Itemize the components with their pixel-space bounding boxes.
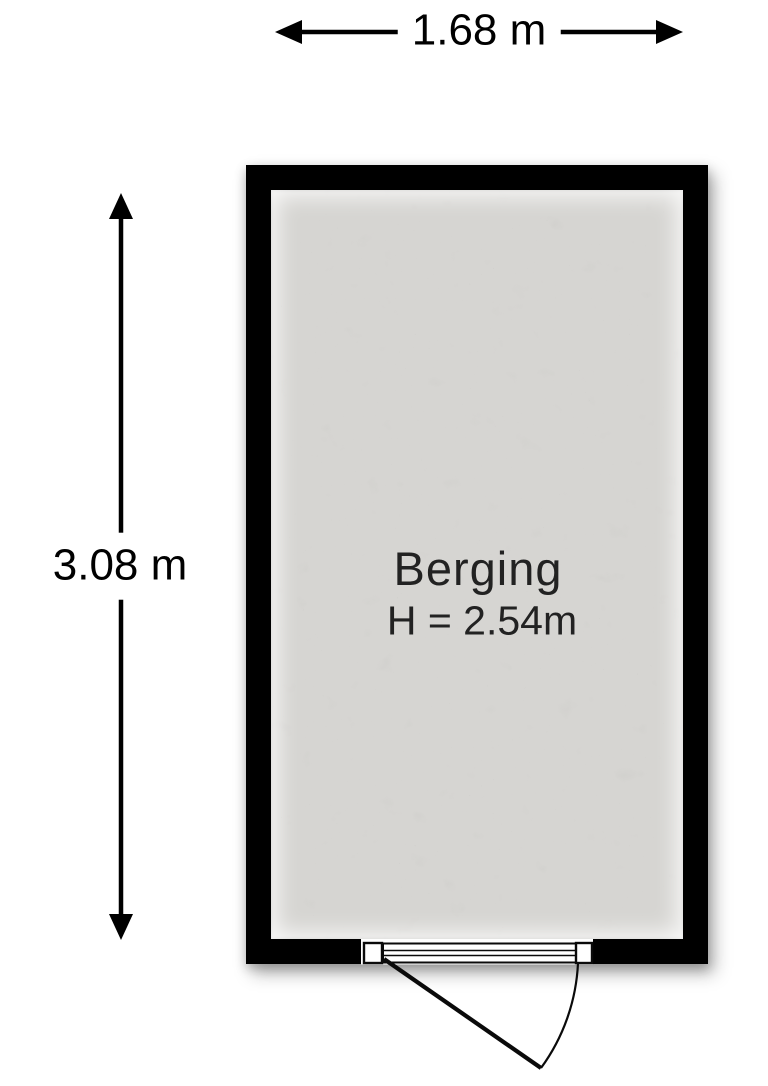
arrowhead-left-icon <box>275 20 302 44</box>
door-jamb-left <box>364 943 382 963</box>
width-dimension-label: 1.68 m <box>398 6 561 57</box>
door-leaf <box>384 959 541 1068</box>
door-threshold <box>383 944 576 963</box>
door <box>361 939 593 1068</box>
arrowhead-down-icon <box>109 914 133 940</box>
floor-plan-canvas: 1.68 m 3.08 m Berging H = 2.54m <box>0 0 768 1086</box>
door-swing-arc <box>541 963 578 1068</box>
arrowhead-up-icon <box>109 193 133 219</box>
arrowhead-right-icon <box>656 20 683 44</box>
room-ceiling-height-label: H = 2.54m <box>387 597 577 644</box>
height-dimension-label: 3.08 m <box>51 533 190 600</box>
room-name-label: Berging <box>394 542 563 596</box>
door-jamb-right <box>576 943 592 963</box>
